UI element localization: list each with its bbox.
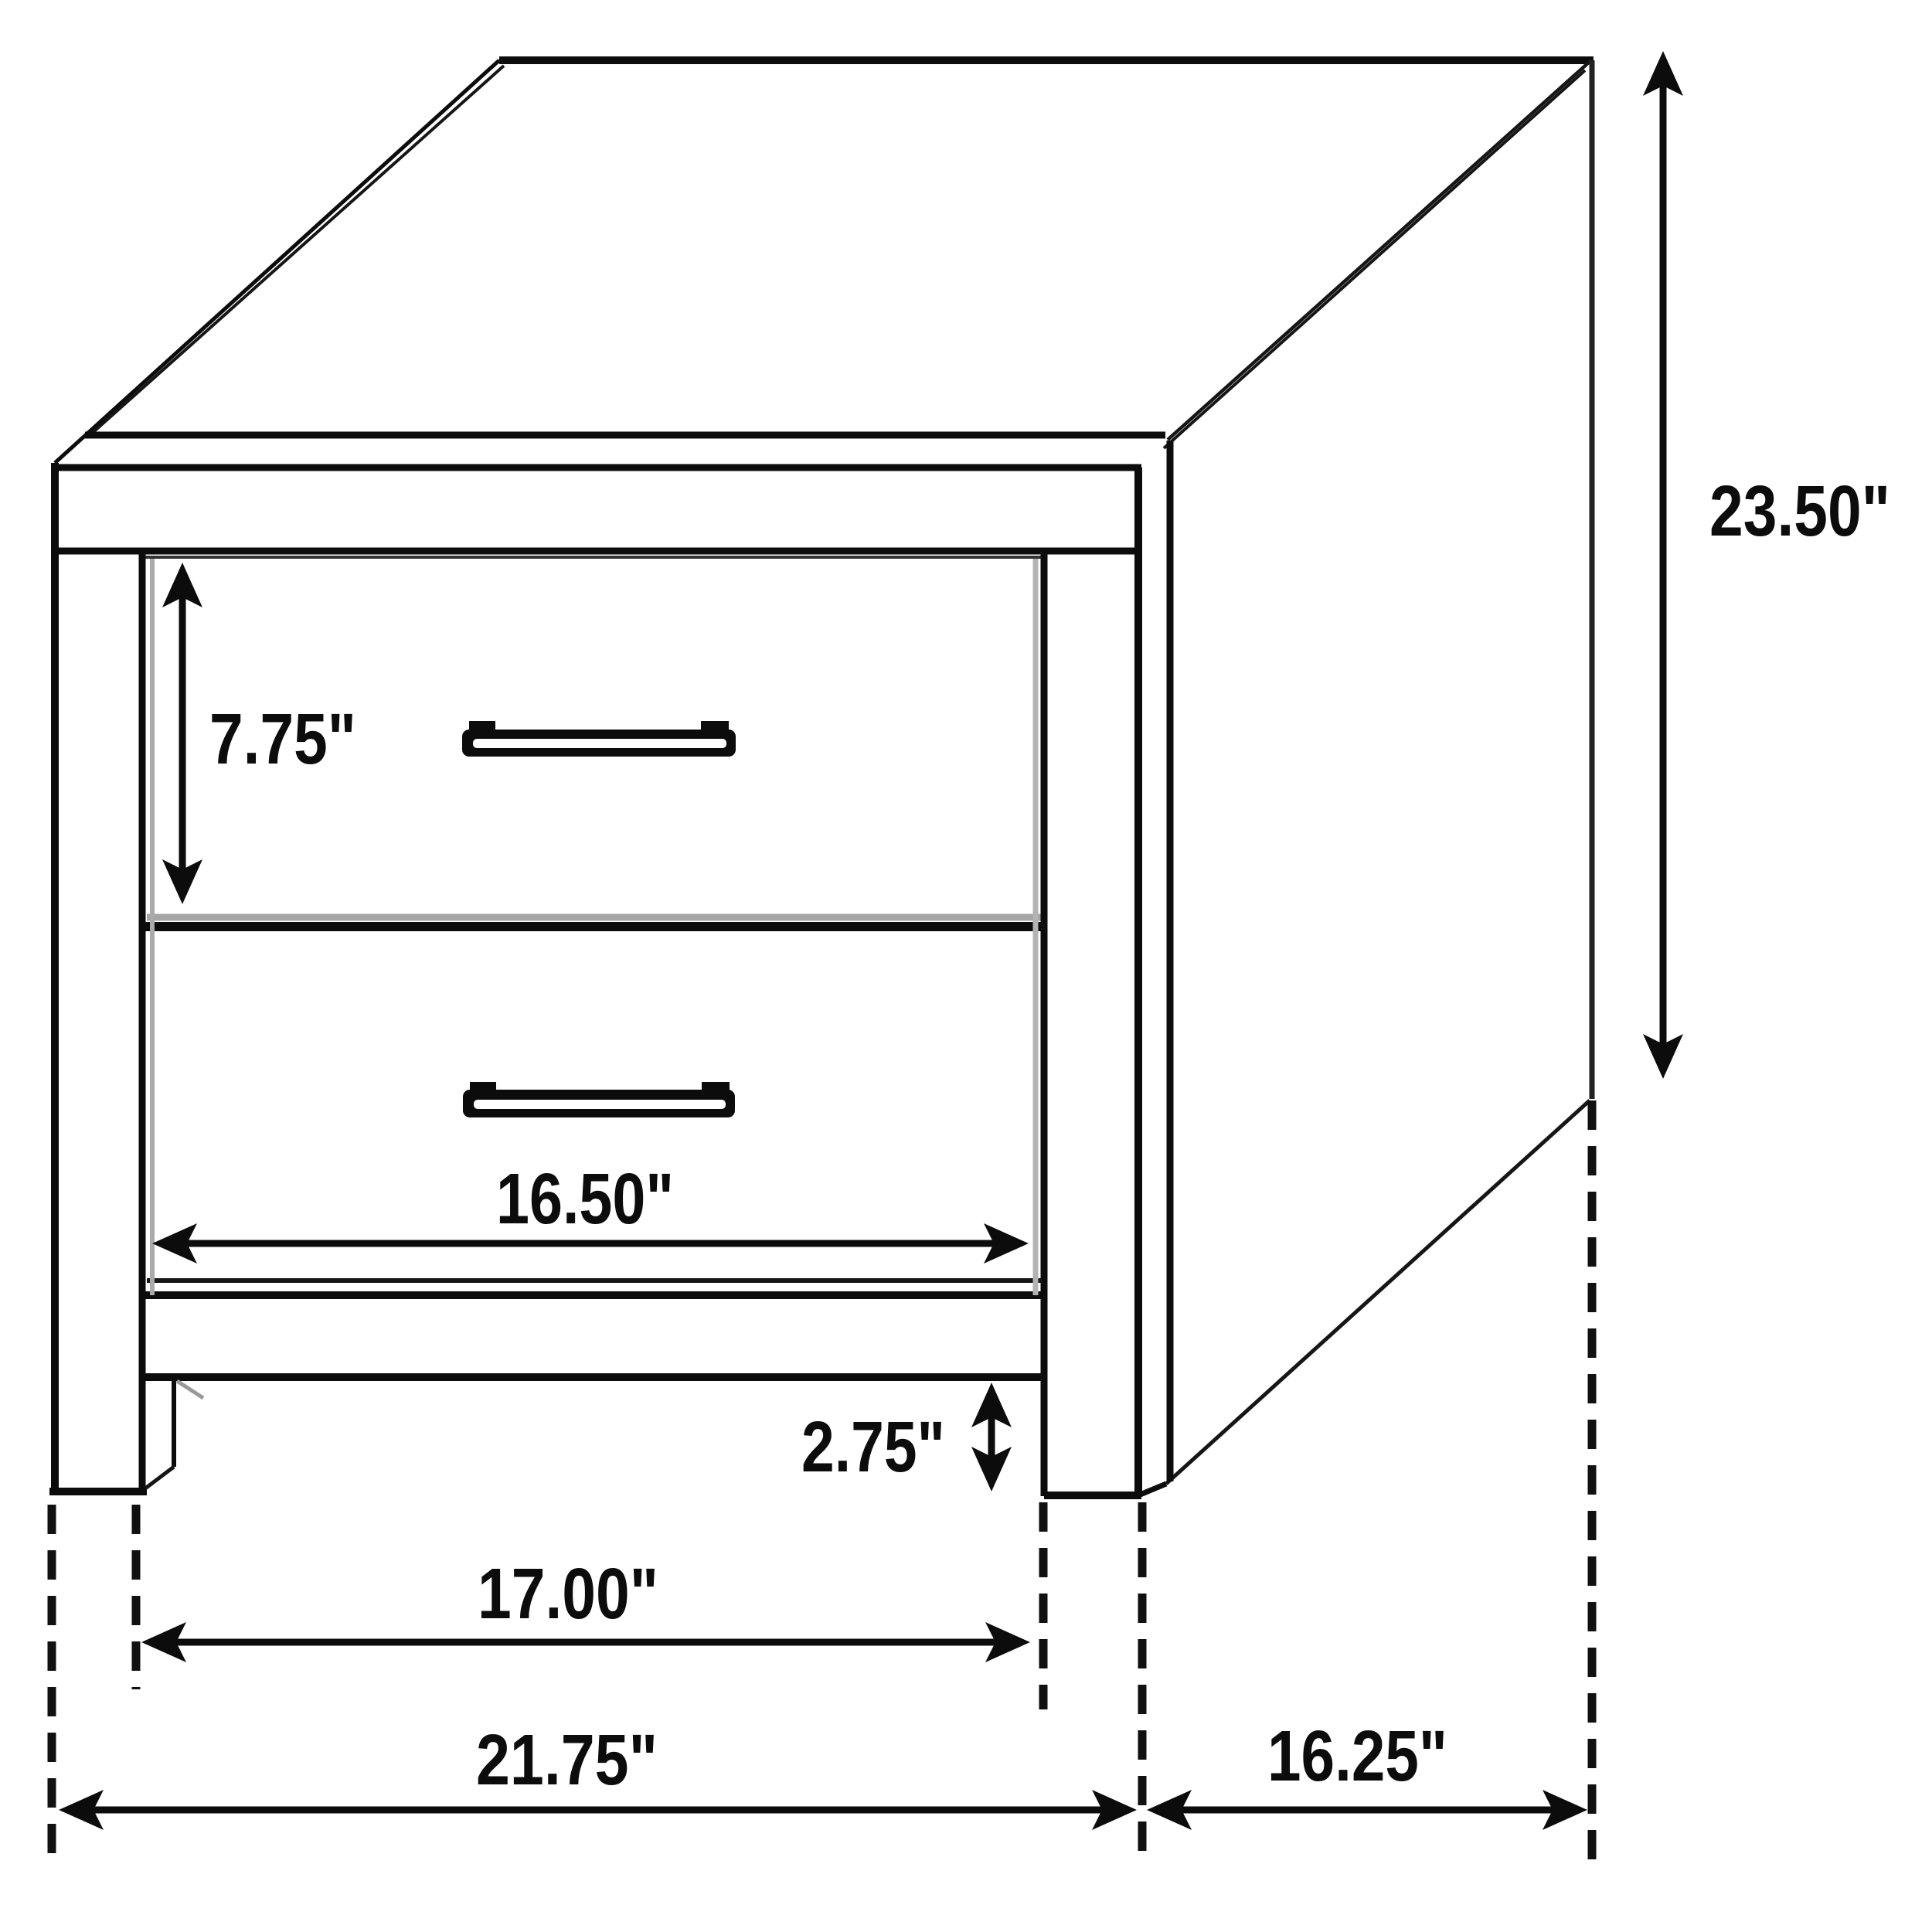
svg-text:7.75": 7.75" (209, 699, 356, 779)
svg-text:21.75": 21.75" (476, 1719, 658, 1800)
svg-text:23.50": 23.50" (1709, 471, 1890, 551)
svg-text:16.25": 16.25" (1267, 1716, 1447, 1796)
svg-text:2.75": 2.75" (801, 1406, 945, 1487)
svg-text:17.00": 17.00" (478, 1553, 658, 1634)
svg-text:16.50": 16.50" (496, 1158, 674, 1239)
